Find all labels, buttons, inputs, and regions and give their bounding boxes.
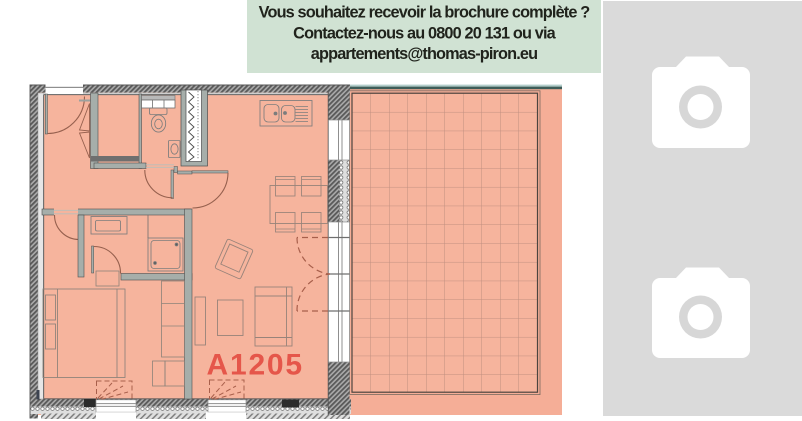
svg-text:A1205: A1205 (207, 349, 304, 382)
svg-text:Vous souhaitez recevoir la bro: Vous souhaitez recevoir la brochure comp… (259, 4, 590, 22)
svg-text:appartements@thomas-piron.eu: appartements@thomas-piron.eu (311, 45, 537, 63)
svg-text:Contactez-nous au 0800 20 131: Contactez-nous au 0800 20 131 ou via (293, 24, 556, 42)
